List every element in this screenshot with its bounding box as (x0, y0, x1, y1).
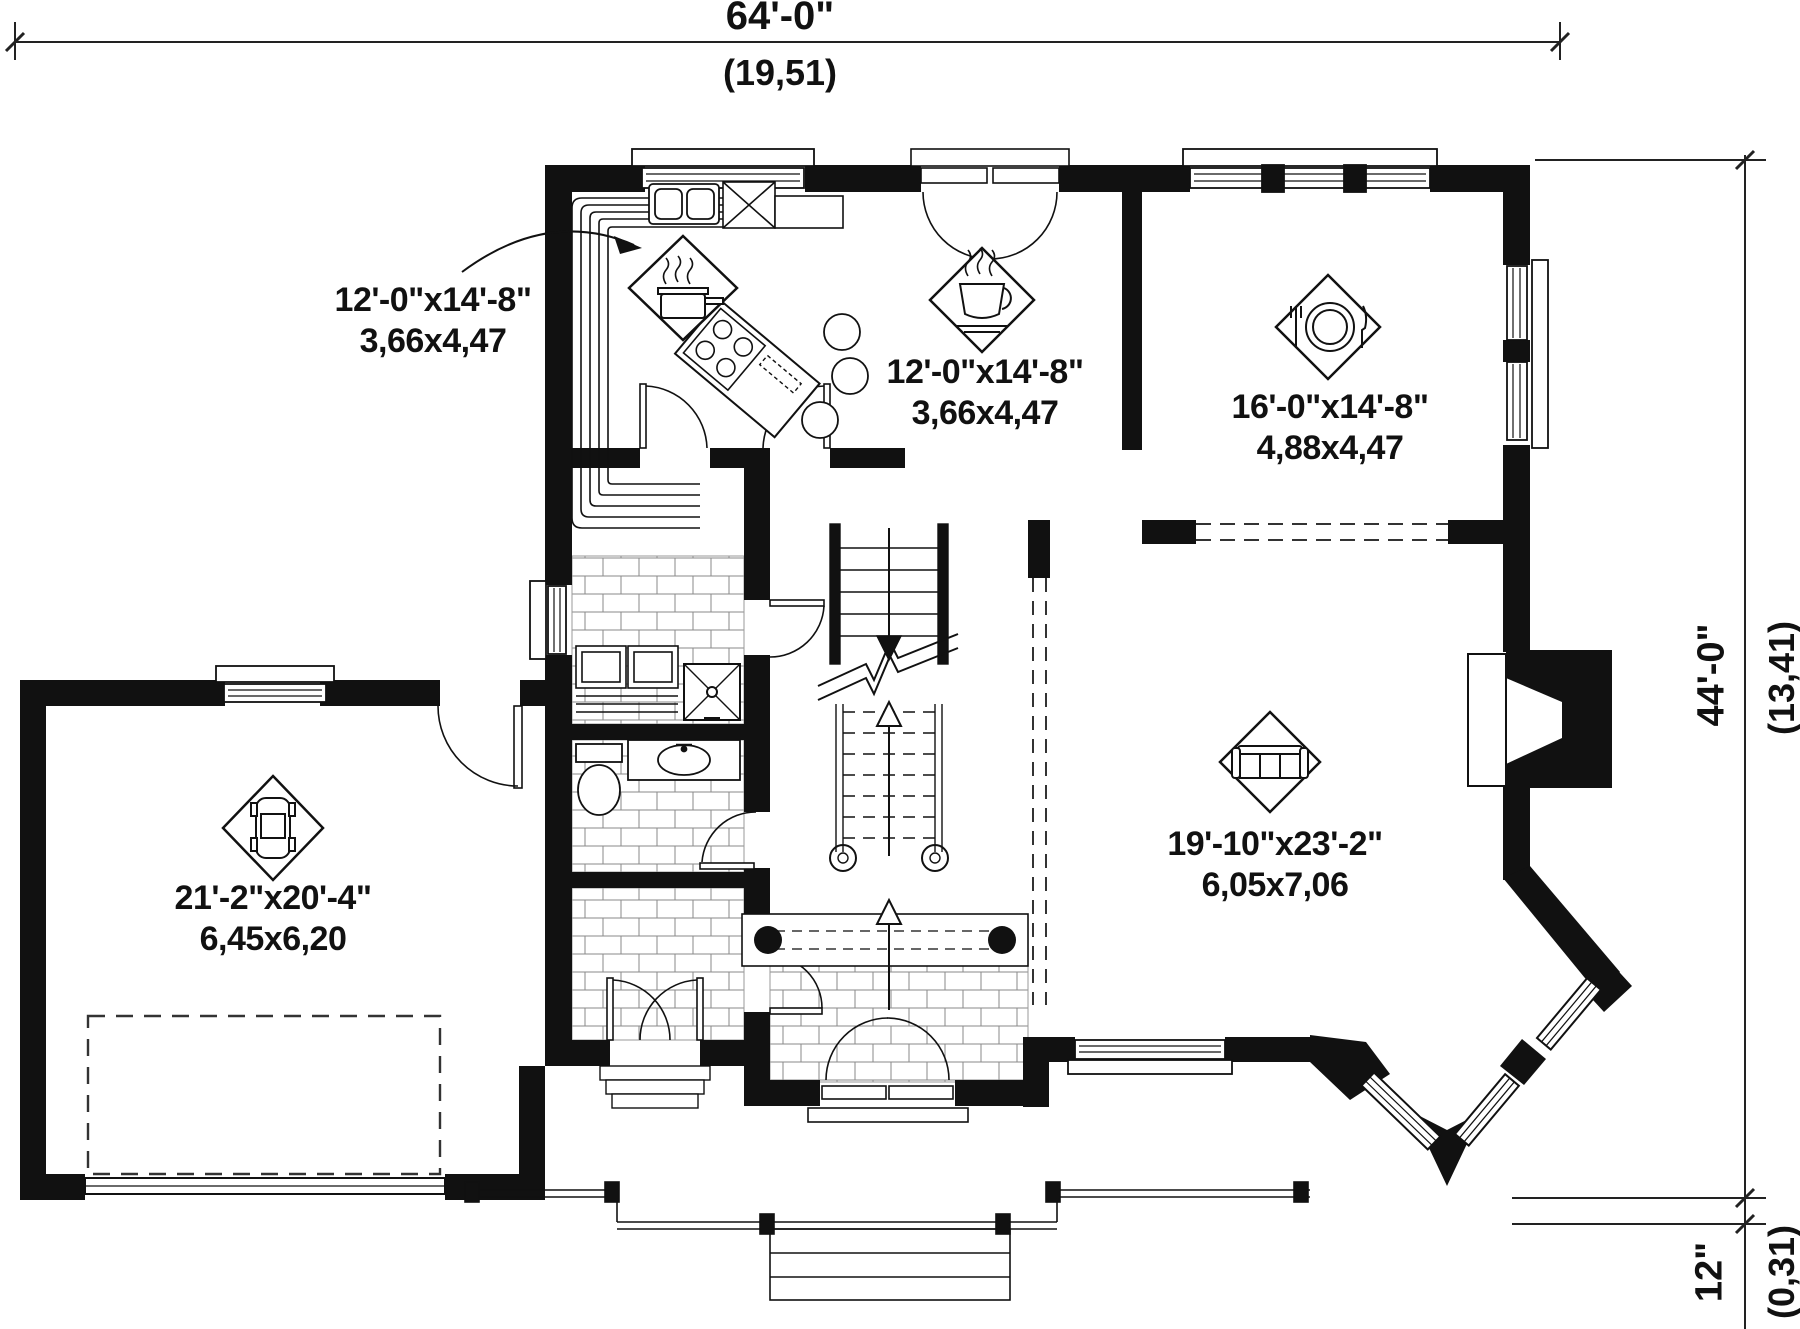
living-room-label: 19'-10"x23'-2" 6,05x7,06 (1105, 824, 1445, 906)
staircase (818, 524, 958, 871)
dining-size-imperial: 16'-0"x14'-8" (1175, 387, 1485, 428)
breakfast-room-label: 12'-0"x14'-8" 3,66x4,47 (830, 352, 1140, 434)
tile-floors (572, 556, 1028, 1082)
kitchen-room-label: 12'-0"x14'-8" 3,66x4,47 (278, 280, 588, 362)
breakfast-size-metric: 3,66x4,47 (830, 393, 1140, 434)
kitchen-size-imperial: 12'-0"x14'-8" (278, 280, 588, 321)
dimension-porch-imperial: 12" (1689, 1242, 1732, 1302)
garage-door (85, 1016, 445, 1194)
breakfast-size-imperial: 12'-0"x14'-8" (830, 352, 1140, 393)
garage-size-imperial: 21'-2"x20'-4" (118, 878, 428, 919)
sofa-icon (1232, 746, 1308, 778)
garage-symbol (223, 776, 323, 880)
dimension-top-metric: (19,51) (590, 52, 970, 94)
dimension-top-imperial: 64'-0" (590, 0, 970, 39)
living-size-imperial: 19'-10"x23'-2" (1105, 824, 1445, 865)
porch (465, 1182, 1310, 1300)
dimension-right-imperial: 44'-0" (1691, 623, 1734, 726)
bathroom-vanity (628, 740, 740, 780)
floor-plan-drawing (0, 0, 1800, 1329)
living-symbol (1220, 712, 1320, 812)
side-steps (600, 1066, 710, 1108)
dimension-right-metric: (13,41) (1761, 621, 1800, 735)
garage-size-metric: 6,45x6,20 (118, 919, 428, 960)
floor-plan-canvas: 64'-0" (19,51) 44'-0" (13,41) 12" (0,31)… (0, 0, 1800, 1329)
dining-size-metric: 4,88x4,47 (1175, 428, 1485, 469)
kitchen-sink (649, 184, 719, 224)
breakfast-symbol (930, 248, 1034, 352)
kitchen-size-metric: 3,66x4,47 (278, 321, 588, 362)
garage-room-label: 21'-2"x20'-4" 6,45x6,20 (118, 878, 428, 960)
dining-symbol (1276, 275, 1380, 379)
dimension-porch-metric: (0,31) (1761, 1225, 1800, 1319)
toilet (576, 744, 622, 815)
bay-windows (1362, 978, 1601, 1149)
shower (684, 664, 740, 720)
dining-room-label: 16'-0"x14'-8" 4,88x4,47 (1175, 387, 1485, 469)
living-size-metric: 6,05x7,06 (1105, 865, 1445, 906)
car-icon (251, 798, 295, 858)
